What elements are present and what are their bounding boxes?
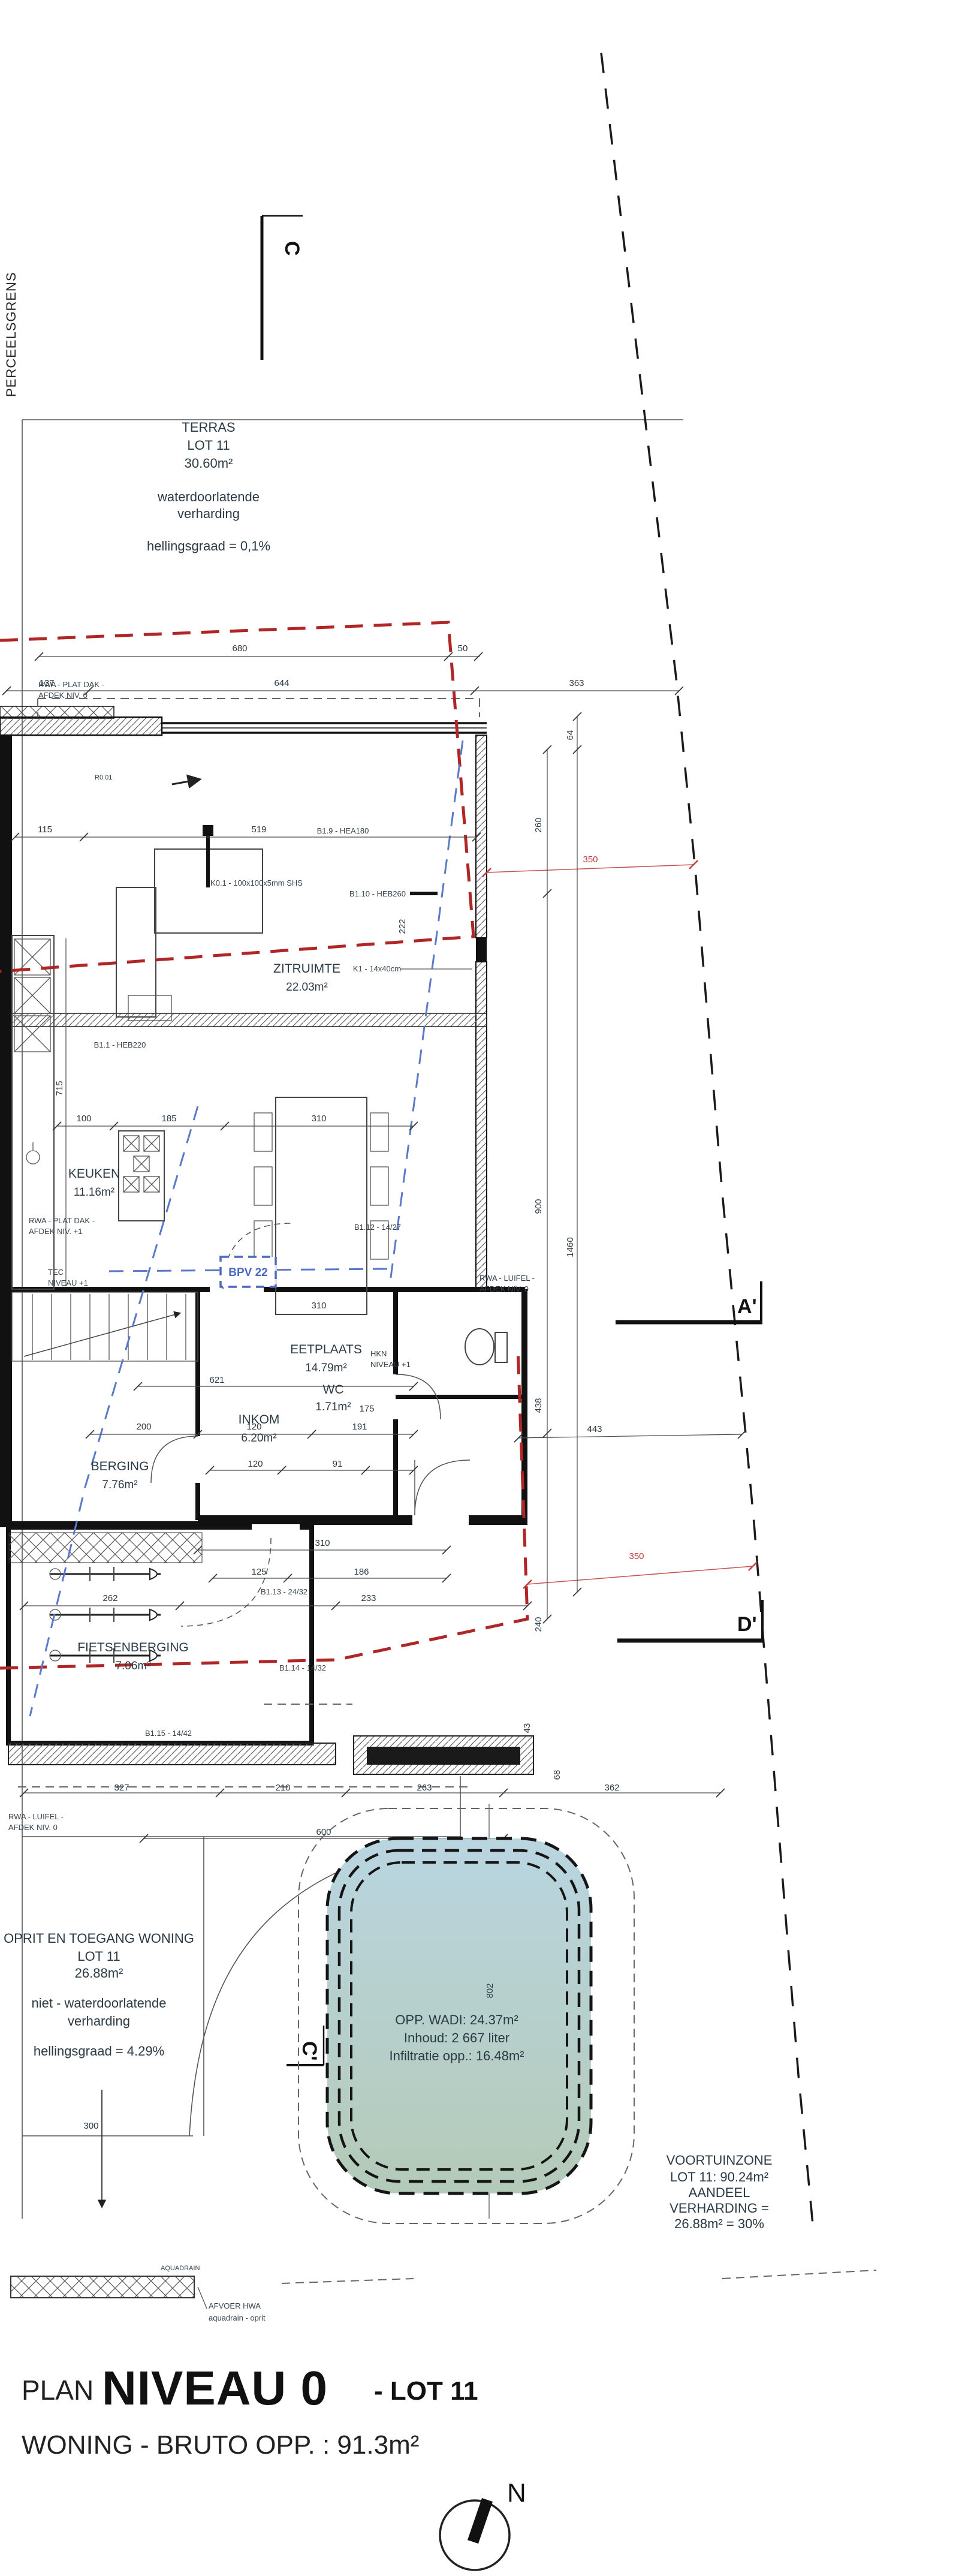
r001-label: R0.01	[95, 774, 112, 781]
dimension-label: 125	[251, 1567, 266, 1577]
title-prefix: PLAN	[22, 2375, 94, 2406]
dimension-label: 310	[311, 1114, 326, 1124]
hkn-2: NIVEAU +1	[370, 1360, 411, 1369]
bottom-dash-2	[722, 2270, 876, 2279]
oprit-name: OPRIT EN TOEGANG WONING	[4, 1931, 194, 1946]
voortuin-line-3: AANDEEL	[689, 2185, 750, 2200]
dimension-label: 300	[83, 2121, 98, 2131]
terras-note-1: waterdoorlatende	[157, 489, 260, 504]
oprit-note-1: niet - waterdoorlatende	[31, 1996, 166, 2011]
dimension-label: 350	[583, 854, 598, 865]
bottom-dash-1	[282, 2279, 414, 2283]
wall-berging-east-2	[195, 1483, 200, 1520]
r001-arrow	[172, 780, 199, 784]
tec-2: NIVEAU +1	[48, 1278, 88, 1287]
door-arc-entrance	[415, 1460, 470, 1515]
room-wc-name: WC	[323, 1383, 344, 1397]
wadi-text-3: Infiltratie opp.: 16.48m²	[389, 2048, 524, 2063]
dimension-label: 260	[533, 817, 544, 832]
setback-dim-line-1	[487, 865, 693, 872]
wall-south-2	[469, 1515, 527, 1525]
chair-2	[254, 1167, 272, 1205]
room-berging-area: 7.76m²	[102, 1479, 137, 1491]
dimension-label: 50	[458, 643, 468, 654]
rwa-dak0-2: AFDEK NIV. 0	[38, 691, 88, 700]
toilet-tank	[495, 1332, 507, 1362]
dimension-label: 1460	[565, 1237, 575, 1257]
beam-label: B1.15 - 14/42	[145, 1729, 192, 1738]
chair-3	[254, 1221, 272, 1259]
dimension-label: 120	[246, 1422, 261, 1432]
dining-table	[276, 1097, 367, 1314]
room-inkom-area: 6.20m²	[241, 1432, 276, 1445]
luifel-south-strip	[8, 1743, 336, 1765]
dimension-label: 438	[533, 1398, 544, 1413]
room-zitruimte-name: ZITRUIMTE	[273, 962, 340, 976]
room-labels: ZITRUIMTE 22.03m² KEUKEN 11.16m² EETPLAA…	[68, 962, 362, 1672]
wall-wc-south	[396, 1395, 525, 1399]
small-annotations: RWA - PLAT DAK - AFDEK NIV. 0 RWA - PLAT…	[8, 680, 535, 1832]
section-marker-c: C	[262, 216, 303, 360]
zone-voortuin: VOORTUINZONE LOT 11: 90.24m² AANDEEL VER…	[667, 2153, 773, 2231]
dimension-label: 137	[39, 678, 54, 688]
dimension-label: 233	[361, 1593, 376, 1603]
terras-note-3: hellingsgraad = 0,1%	[147, 538, 270, 553]
room-keuken-name: KEUKEN	[68, 1167, 120, 1181]
dimension-label: 680	[232, 643, 247, 654]
dimension-label: 240	[533, 1617, 544, 1632]
afvoer-leader	[198, 2287, 207, 2309]
sofa-chaise	[116, 887, 156, 1017]
bicycle-1	[50, 1567, 161, 1581]
oprit-note-2: verharding	[68, 2014, 130, 2029]
rwa-dak1-1: RWA - PLAT DAK -	[29, 1216, 95, 1225]
dimension-label: 68	[552, 1770, 562, 1780]
section-letter-a-prime: A'	[737, 1295, 757, 1318]
rwa-luifel-left-1: RWA - LUIFEL -	[8, 1812, 64, 1821]
wadi: OPP. WADI: 24.37m² Inhoud: 2 667 liter I…	[298, 1808, 634, 2223]
canopies	[8, 699, 533, 1787]
dimension-label: 802	[485, 1983, 495, 1998]
rwa-luifel-right-2: AFDEK NIV. 0	[480, 1284, 529, 1293]
beam-label: K0.1 - 100x100x5mm SHS	[210, 878, 303, 887]
section-marker-c-prime: C'	[287, 2026, 324, 2065]
beam-label: B1.1 - HEB220	[94, 1040, 146, 1049]
beam-label: B1.14 - 14/32	[279, 1663, 326, 1672]
dimension-label: 900	[533, 1199, 544, 1214]
dimension-label: 185	[161, 1114, 176, 1124]
aquadrain-label: AQUADRAIN	[161, 2265, 200, 2272]
dimension-label: 363	[569, 678, 584, 688]
chair-4	[370, 1113, 388, 1151]
dimension-label: 262	[102, 1593, 117, 1603]
title-suffix: - LOT 11	[374, 2376, 478, 2406]
dimension-label: 350	[629, 1551, 644, 1561]
chair-1	[254, 1113, 272, 1151]
beam-label: B1.9 - HEA180	[317, 826, 369, 835]
dimension-label: 200	[136, 1422, 151, 1432]
dimension-ticks	[2, 652, 746, 1843]
title-subtitle: WONING - BRUTO OPP. : 91.3m²	[22, 2430, 419, 2460]
property-boundary-line	[601, 53, 814, 2237]
column-k01	[203, 825, 213, 836]
room-fietsenberging-name: FIETSENBERGING	[77, 1641, 189, 1654]
wall-south-1	[198, 1515, 412, 1525]
oprit-note-3: hellingsgraad = 4.29%	[34, 2044, 164, 2059]
title-block: PLAN NIVEAU 0 - LOT 11 WONING - BRUTO OP…	[22, 2361, 478, 2460]
afvoer-label-1: AFVOER HWA	[209, 2301, 261, 2310]
setback-dim-line-2	[527, 1566, 753, 1584]
wall-top-left	[0, 717, 162, 735]
tec-1: TEC	[48, 1268, 64, 1277]
beam-label: B1.12 - 14/27	[354, 1223, 401, 1232]
oprit-lot: LOT 11	[77, 1949, 120, 1964]
wall-mid-2	[264, 1287, 396, 1292]
door-arc-berging	[151, 1436, 198, 1483]
dimension-label: 327	[114, 1783, 129, 1793]
north-needle	[468, 2498, 493, 2544]
dimension-label: 43	[522, 1723, 532, 1734]
section-letter-d-prime: D'	[737, 1613, 757, 1636]
room-keuken-area: 11.16m²	[74, 1186, 114, 1199]
dimension-label: 362	[604, 1783, 619, 1793]
title-main: NIVEAU 0	[102, 2361, 328, 2415]
room-zitruimte-area: 22.03m²	[286, 981, 328, 994]
wadi-text-1: OPP. WADI: 24.37m²	[395, 2012, 518, 2027]
luifel-right-bar	[367, 1747, 520, 1765]
dimension-label: 191	[352, 1422, 367, 1432]
stair-treads	[32, 1294, 186, 1360]
wall-west	[0, 735, 12, 1526]
dimension-label: 600	[316, 1827, 331, 1837]
dimension-label: 64	[565, 730, 575, 741]
aquadrain: AQUADRAIN AFVOER HWA aquadrain - oprit	[11, 2265, 266, 2322]
terras-area: 30.60m²	[185, 456, 233, 471]
section-marker-d-prime: D'	[617, 1600, 764, 1641]
stair-direction-arrow	[24, 1313, 180, 1356]
post-east	[476, 938, 487, 962]
voortuin-line-5: 26.88m² = 30%	[674, 2216, 764, 2231]
bpv-label: BPV 22	[228, 1266, 267, 1279]
voortuin-line-4: VERHARDING =	[670, 2201, 769, 2216]
zone-terras: TERRAS LOT 11 30.60m² waterdoorlatende v…	[147, 420, 270, 553]
dimension-label: 222	[397, 919, 408, 934]
terras-lot: LOT 11	[187, 438, 230, 453]
voortuin-line-2: LOT 11: 90.24m²	[670, 2169, 768, 2184]
terras-name: TERRAS	[182, 420, 235, 435]
rwa-luifel-right-1: RWA - LUIFEL -	[480, 1274, 535, 1283]
sink	[26, 1151, 40, 1164]
dimension-label: 210	[275, 1783, 290, 1793]
toilet	[465, 1329, 494, 1365]
kitchen-counter	[12, 935, 54, 1289]
dimension-label: 519	[251, 824, 266, 835]
floor-plan-canvas: PERCEELSGRENS C A' D' C'	[0, 0, 971, 2576]
beam-label: K1 - 14x40cm	[353, 964, 401, 973]
building-envelope-lines	[0, 622, 757, 1668]
room-wc-area: 1.71m²	[315, 1401, 351, 1413]
dimension-label: 91	[333, 1459, 343, 1469]
dimension-label: 644	[274, 678, 289, 688]
zone-oprit: OPRIT EN TOEGANG WONING LOT 11 26.88m² n…	[4, 1931, 194, 2059]
appliance-crosses	[14, 939, 50, 1052]
dimension-label: 310	[315, 1538, 330, 1548]
rwa-dak1-2: AFDEK NIV. +1	[29, 1227, 82, 1236]
north-arrow: N	[440, 2478, 526, 2570]
afvoer-label-2: aquadrain - oprit	[209, 2313, 266, 2322]
rwa-luifel-left-2: AFDEK NIV. 0	[8, 1823, 58, 1832]
dimension-label: 621	[209, 1375, 224, 1385]
stair-outline	[12, 1292, 198, 1361]
dimension-label: 120	[248, 1459, 263, 1469]
window-east-lower	[476, 962, 487, 1289]
dimension-label: 443	[587, 1424, 602, 1434]
terras-note-2: verharding	[177, 506, 240, 521]
dimension-label: 715	[55, 1081, 65, 1096]
aquadrain-strip	[11, 2276, 194, 2298]
room-berging-name: BERGING	[91, 1459, 149, 1473]
floor-plan-page: PERCEELSGRENS C A' D' C'	[0, 0, 971, 2576]
dimension-label: 186	[354, 1567, 369, 1577]
beam-label: B1.13 - 24/32	[261, 1587, 307, 1596]
section-letter-c: C	[281, 241, 303, 256]
wadi-text-2: Inhoud: 2 667 liter	[404, 2030, 509, 2045]
voortuin-line-1: VOORTUINZONE	[667, 2153, 773, 2168]
burner-crosses	[123, 1136, 159, 1192]
kitchen-island	[119, 1131, 164, 1221]
room-eetplaats-name: EETPLAATS	[290, 1343, 362, 1356]
north-label: N	[507, 2478, 526, 2508]
dimension-label: 100	[76, 1114, 91, 1124]
dimension-label: 263	[417, 1783, 432, 1793]
dimension-label: 115	[38, 824, 52, 835]
section-marker-a-prime: A'	[616, 1281, 762, 1323]
hatch-band	[9, 1533, 202, 1563]
beam-band	[0, 1013, 487, 1027]
hkn-1: HKN	[370, 1349, 387, 1358]
section-letter-c-prime: C'	[298, 2041, 321, 2061]
beam-label: B1.10 - HEB260	[349, 889, 406, 898]
perceelsgrens-label: PERCEELSGRENS	[4, 272, 19, 397]
dimension-label: 310	[311, 1301, 326, 1311]
room-eetplaats-area: 14.79m²	[305, 1362, 347, 1374]
dimension-label: 175	[359, 1404, 374, 1414]
bicycle-2	[50, 1608, 161, 1622]
chair-5	[370, 1167, 388, 1205]
oprit-area: 26.88m²	[75, 1966, 123, 1981]
room-fietsenberging-area: 7.06m²	[115, 1660, 150, 1672]
